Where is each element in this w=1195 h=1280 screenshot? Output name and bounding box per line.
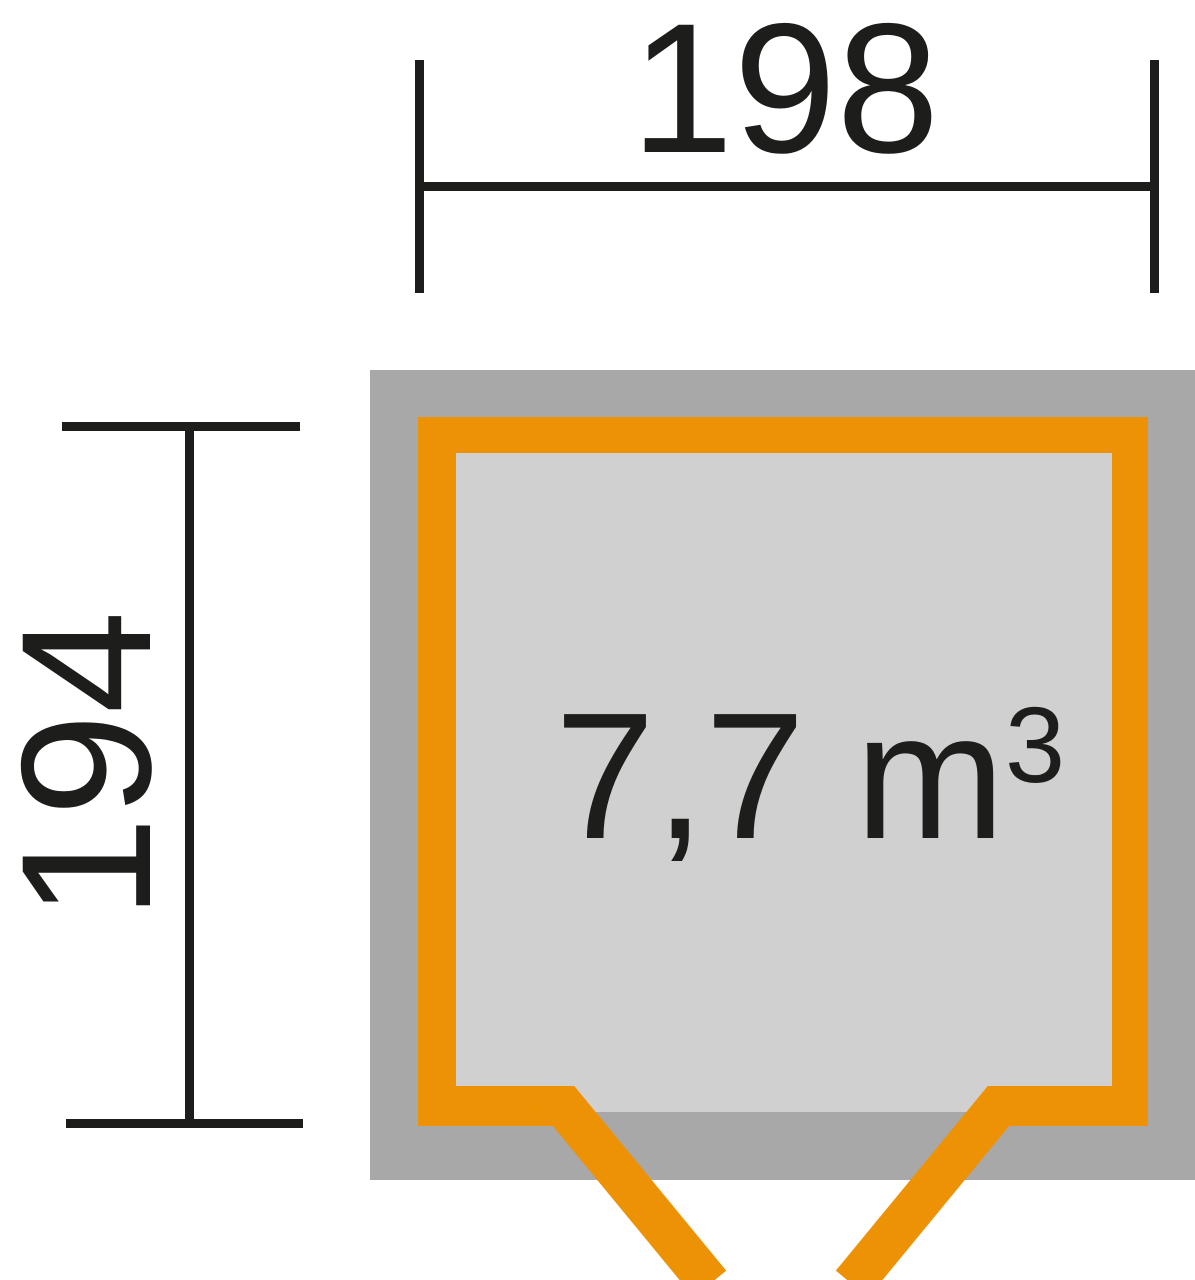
volume-label: 7,7 m3: [555, 676, 1065, 877]
door-threshold: [562, 1112, 1000, 1126]
depth-dimension-tick-bottom: [66, 1119, 303, 1128]
volume-superscript: 3: [1005, 684, 1065, 805]
depth-dimension-label: 194: [0, 611, 190, 920]
depth-dimension-tick-top: [62, 422, 300, 431]
shed-floor-plan-svg: 7,7 m3 198 194: [0, 0, 1195, 1280]
depth-dimension: 194: [0, 422, 303, 1128]
width-dimension: 198: [415, 0, 1159, 293]
width-dimension-tick-left: [415, 60, 424, 293]
shed-plan: 7,7 m3: [370, 370, 1195, 1280]
volume-value: 7,7 m: [555, 676, 1005, 877]
floor-plan-diagram: 7,7 m3 198 194: [0, 0, 1195, 1280]
door-opening-floor: [562, 1086, 1000, 1112]
width-dimension-label: 198: [631, 0, 940, 192]
width-dimension-tick-right: [1150, 60, 1159, 293]
